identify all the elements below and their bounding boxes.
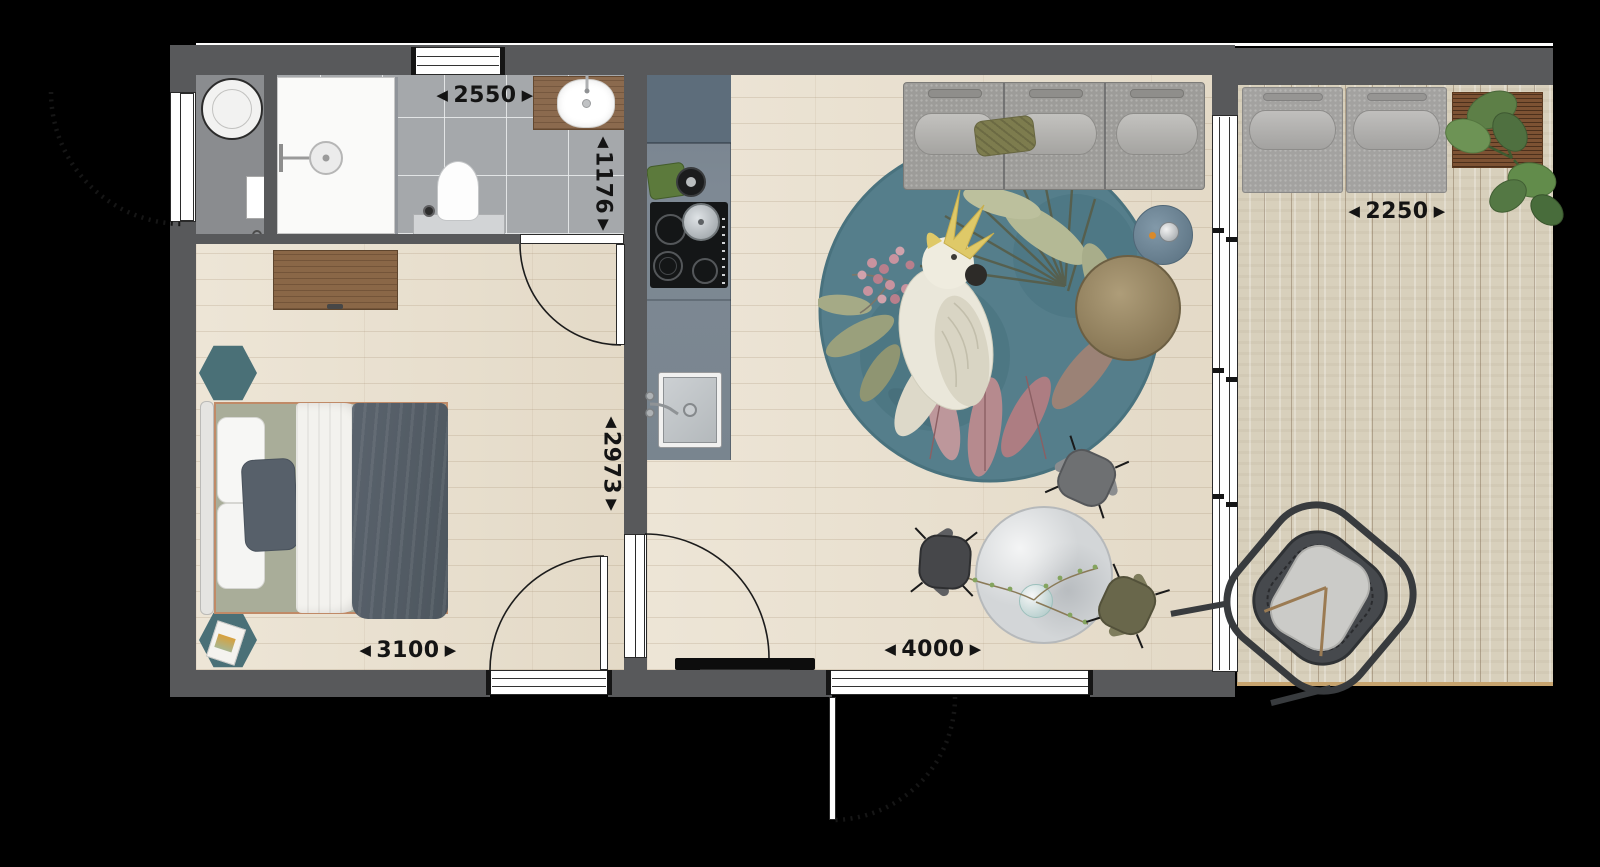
arrow-left-icon: ◀ <box>884 642 896 657</box>
dimension-value: 3100 <box>376 638 439 663</box>
basin-faucet-icon <box>585 76 590 94</box>
exterior-door-swing-arcs <box>51 92 955 820</box>
dining-chair <box>1086 564 1169 648</box>
vase-sprigs <box>968 565 1098 625</box>
dimension-value: 2550 <box>453 83 516 108</box>
arrow-left-icon: ◀ <box>359 643 371 658</box>
arrow-right-icon: ▶ <box>1434 204 1446 219</box>
dimension-value: 1176 <box>591 151 616 214</box>
arrow-right-icon: ▶ <box>970 642 982 657</box>
overlay-graphics <box>0 0 1600 867</box>
dimension-value: 2250 <box>1365 199 1428 224</box>
dimension-bedroom-width: ◀ 3100 ▶ <box>341 637 475 663</box>
hanging-egg-chair <box>1168 470 1432 735</box>
shower-head-icon <box>281 142 342 174</box>
dimension-living-width: ◀ 4000 ▶ <box>866 636 1000 662</box>
dimension-value: 2973 <box>599 431 624 494</box>
arrow-left-icon: ◀ <box>436 88 448 103</box>
arrow-up-icon: ▲ <box>597 134 609 149</box>
floor-plan: ◀ 2550 ▶ ▲ 1176 ▼ ▲ 2973 ▼ ◀ 3100 ▶ ◀ 40… <box>0 0 1600 867</box>
arrow-right-icon: ▶ <box>445 643 457 658</box>
dimension-value: 4000 <box>901 637 964 662</box>
arrow-down-icon: ▼ <box>597 217 609 232</box>
dimension-bathroom-width: ◀ 2550 ▶ <box>418 82 552 108</box>
kitchen-faucet-icon <box>646 392 678 417</box>
arrow-right-icon: ▶ <box>522 88 534 103</box>
dimension-bathroom-depth: ▲ 1176 ▼ <box>586 140 620 226</box>
dimension-bedroom-depth: ▲ 2973 ▼ <box>594 420 628 506</box>
dining-chair <box>1045 436 1129 519</box>
arrow-left-icon: ◀ <box>1348 204 1360 219</box>
arrow-up-icon: ▲ <box>605 414 617 429</box>
dining-chair <box>911 528 977 596</box>
door-swing-arcs <box>490 244 769 670</box>
dimension-terrace-width: ◀ 2250 ▶ <box>1330 198 1464 224</box>
arrow-down-icon: ▼ <box>605 497 617 512</box>
